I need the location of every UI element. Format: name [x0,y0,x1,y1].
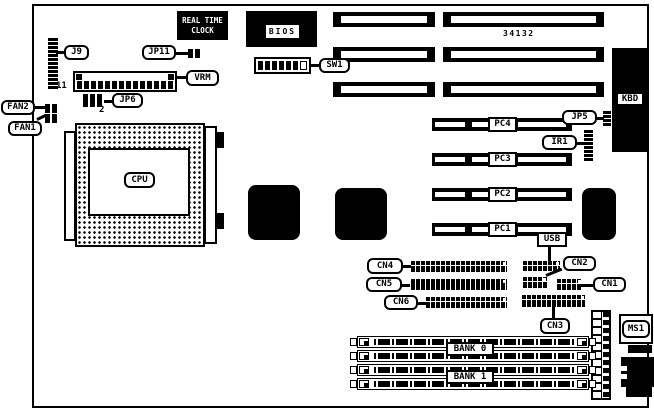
fan2-leader [34,106,45,109]
ir1-label: IR1 [542,135,577,150]
rtc-label-line1: REAL TIME [182,16,223,26]
bank0-label: BANK 0 [446,342,494,356]
pc4-label: PC4 [488,117,517,132]
usb-leader [548,247,551,261]
cn2-header [522,277,547,288]
jp11-leader [175,52,188,55]
cn5-label: CN5 [366,277,402,292]
sw1-dipswitch [254,57,311,74]
fan2-label: FAN2 [1,100,35,115]
j9-label: J9 [64,45,89,60]
jp5-label: JP5 [562,110,597,125]
ir1-leader [576,142,585,145]
cn1-leader [581,284,593,287]
jp6-label: JP6 [112,93,143,108]
cpu-socket-right-bar [204,126,217,244]
sw1-label: SW1 [319,58,350,73]
ir1-header [584,130,593,162]
j9-pin-marker: 11 [56,82,67,91]
cpu-label: CPU [124,172,155,188]
cn1-header [556,279,582,290]
external-port-stack-body [621,357,654,387]
motherboard-diagram: J9 11 JP11 VRM JP6 2 FAN2 FAN1 REAL TIME… [0,0,654,415]
chipset-qfp-3 [582,188,616,240]
bank1-label: BANK 1 [446,370,494,384]
fan1-label: FAN1 [8,121,42,136]
pc3-label: PC3 [488,152,517,167]
cn6-header [425,297,507,308]
cn2-label: CN2 [563,256,596,271]
bios-label: BIOS [266,25,299,38]
cn4-label: CN4 [367,258,403,274]
cpu-socket-tab-bottom [217,213,224,229]
kbd-label: KBD [616,92,644,106]
board-part-number: 34132 [503,30,535,38]
isa-slot-3-left [333,82,435,97]
usb-label: USB [537,232,567,247]
rtc-chip: REAL TIME CLOCK [177,11,228,40]
cn6-label: CN6 [384,295,418,310]
rtc-label-line2: CLOCK [191,26,214,36]
fan1-header [45,114,57,123]
bios-chip: BIOS [246,11,317,47]
cn6-leader [417,302,426,305]
vrm-leader [177,76,186,79]
jp11-label: JP11 [142,45,176,60]
fan2-header [45,104,57,113]
pc1-label: PC1 [488,222,517,237]
chipset-qfp-2 [335,188,387,240]
vrm-label: VRM [186,70,219,86]
external-port-stack-bottom [626,387,652,397]
cn3-header [521,295,585,307]
isa-slot-1-right [443,12,604,27]
cn5-header [410,279,507,290]
cn4-header [410,261,507,272]
cn3-label: CN3 [540,318,570,334]
external-port-stack-top [628,345,652,353]
jp11-jumper [188,49,200,58]
ms1-connector: MS1 [619,314,653,344]
jp6-pin-marker: 2 [99,106,104,115]
vrm-slot [73,71,177,92]
chipset-qfp-1 [248,185,300,240]
pc2-label: PC2 [488,187,517,202]
cpu-socket-tab-top [217,132,224,148]
cn4-leader [402,265,411,268]
jp5-leader [596,117,604,120]
jp5-jumper [603,111,611,126]
ms1-label: MS1 [622,320,650,338]
isa-slot-1-left [333,12,435,27]
isa-slot-2-right [443,47,604,62]
port-notch-2 [621,374,627,379]
isa-slot-3-right [443,82,604,97]
port-notch-1 [621,366,627,371]
cn1-label: CN1 [593,277,626,292]
